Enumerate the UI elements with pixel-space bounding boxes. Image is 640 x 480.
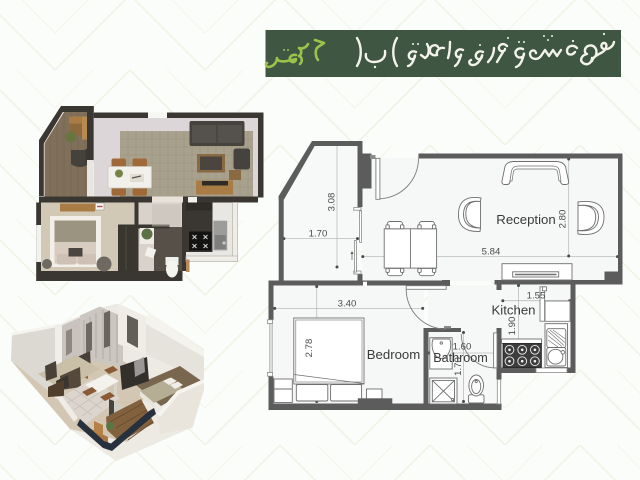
svg-text:1.70: 1.70 — [453, 357, 464, 376]
svg-text:1.55: 1.55 — [527, 290, 546, 301]
svg-text:Kitchen: Kitchen — [492, 303, 536, 318]
svg-text:3.08: 3.08 — [327, 193, 338, 212]
svg-text:1.70: 1.70 — [309, 228, 328, 239]
svg-text:Reception: Reception — [496, 212, 555, 227]
svg-text:3.40: 3.40 — [338, 298, 357, 309]
svg-text:5.84: 5.84 — [482, 247, 501, 258]
svg-text:1.60: 1.60 — [453, 342, 472, 353]
svg-text:1.90: 1.90 — [507, 317, 518, 336]
svg-text:2.80: 2.80 — [558, 210, 569, 229]
svg-text:2.78: 2.78 — [304, 339, 315, 358]
svg-text:Bedroom: Bedroom — [367, 347, 421, 362]
